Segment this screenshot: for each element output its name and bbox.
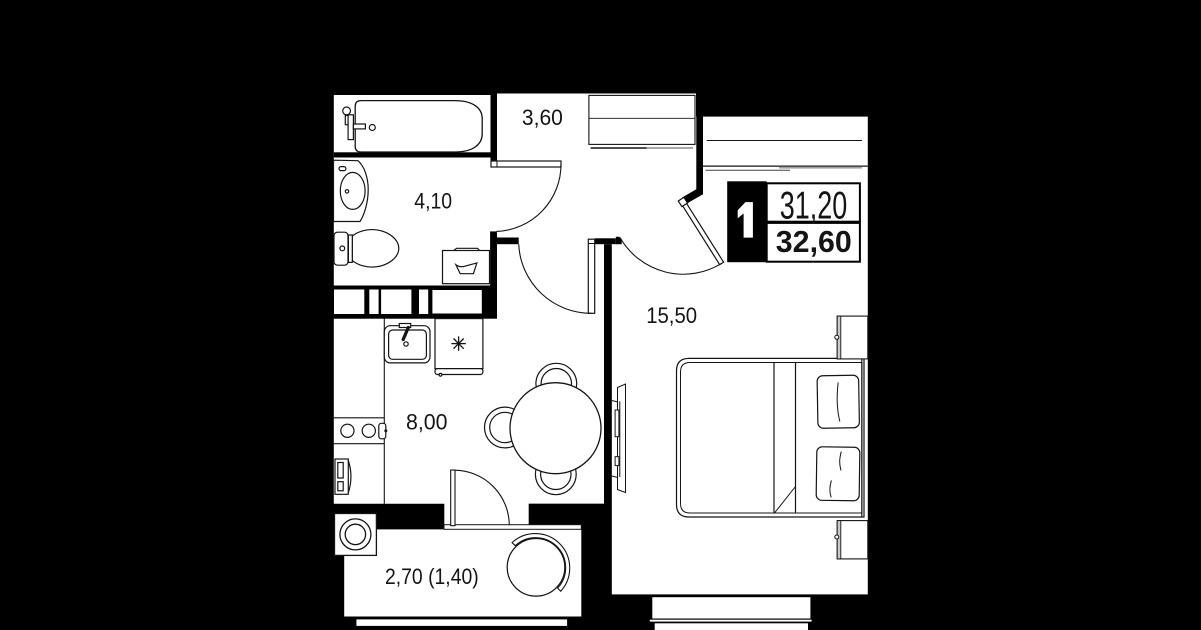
svg-text:32,60: 32,60 [776, 224, 852, 259]
svg-text:2,70 (1,40): 2,70 (1,40) [385, 564, 479, 589]
svg-text:15,50: 15,50 [646, 303, 697, 328]
svg-text:31,20: 31,20 [780, 185, 848, 228]
svg-text:3,60: 3,60 [522, 105, 563, 130]
svg-text:8,00: 8,00 [406, 410, 448, 435]
svg-text:4,10: 4,10 [414, 189, 452, 214]
